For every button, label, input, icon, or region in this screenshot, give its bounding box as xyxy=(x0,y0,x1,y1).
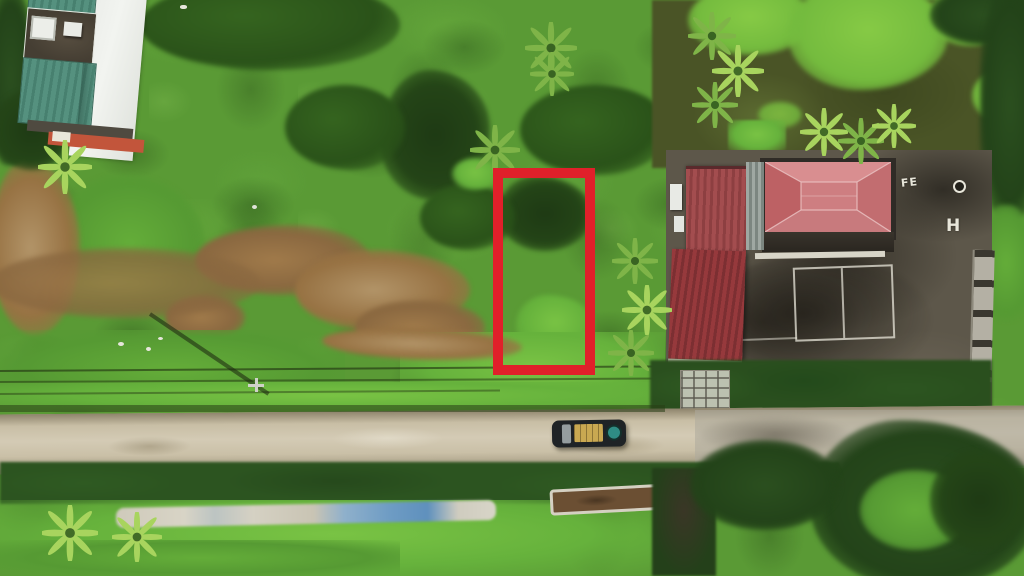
yard-marking-fe: FE xyxy=(900,175,918,190)
metal-gate xyxy=(680,370,730,410)
palm-plant xyxy=(112,512,162,562)
corrugated-roof-lower xyxy=(668,249,746,366)
yard-marking-h: H xyxy=(946,216,960,236)
aerial-photo: FE H xyxy=(0,0,1024,576)
tree-canopy-dark xyxy=(930,450,1024,550)
yard-marking-dot xyxy=(953,180,966,193)
gray-panel-roof xyxy=(746,162,764,250)
dark-vegetation-patch xyxy=(285,85,405,170)
banana-clump xyxy=(530,52,574,96)
ac-unit xyxy=(63,22,82,38)
road-edge-shadow xyxy=(0,405,665,412)
dark-vegetation-patch xyxy=(520,85,670,175)
dry-row-band xyxy=(0,248,260,318)
hip-roof xyxy=(765,162,891,232)
vehicle-spare-cover xyxy=(606,424,622,440)
white-speck xyxy=(180,5,187,9)
court-center-line xyxy=(841,268,845,338)
white-speck xyxy=(118,342,124,346)
skylight-box xyxy=(30,16,57,41)
utility-pole xyxy=(255,378,258,392)
main-house-front-shadow xyxy=(762,232,894,252)
white-speck xyxy=(146,347,151,351)
vehicle xyxy=(552,419,626,447)
vehicle-windshield xyxy=(562,424,571,443)
banana-clump xyxy=(612,238,658,284)
white-speck xyxy=(252,205,257,209)
palm-plant xyxy=(42,505,98,561)
white-speck xyxy=(158,337,163,340)
tree-canopy xyxy=(690,440,840,530)
ac-unit xyxy=(670,184,682,210)
vehicle-cargo-bed xyxy=(574,424,603,443)
court-lines xyxy=(793,264,896,341)
banana-clump xyxy=(872,104,916,148)
ac-unit xyxy=(674,216,684,232)
plot-marker xyxy=(493,168,595,375)
corrugated-roof-upper xyxy=(686,166,746,253)
banana-clump xyxy=(622,285,672,335)
banana-clump xyxy=(608,330,654,376)
palm-plant xyxy=(38,140,92,194)
banana-clump xyxy=(692,82,738,128)
